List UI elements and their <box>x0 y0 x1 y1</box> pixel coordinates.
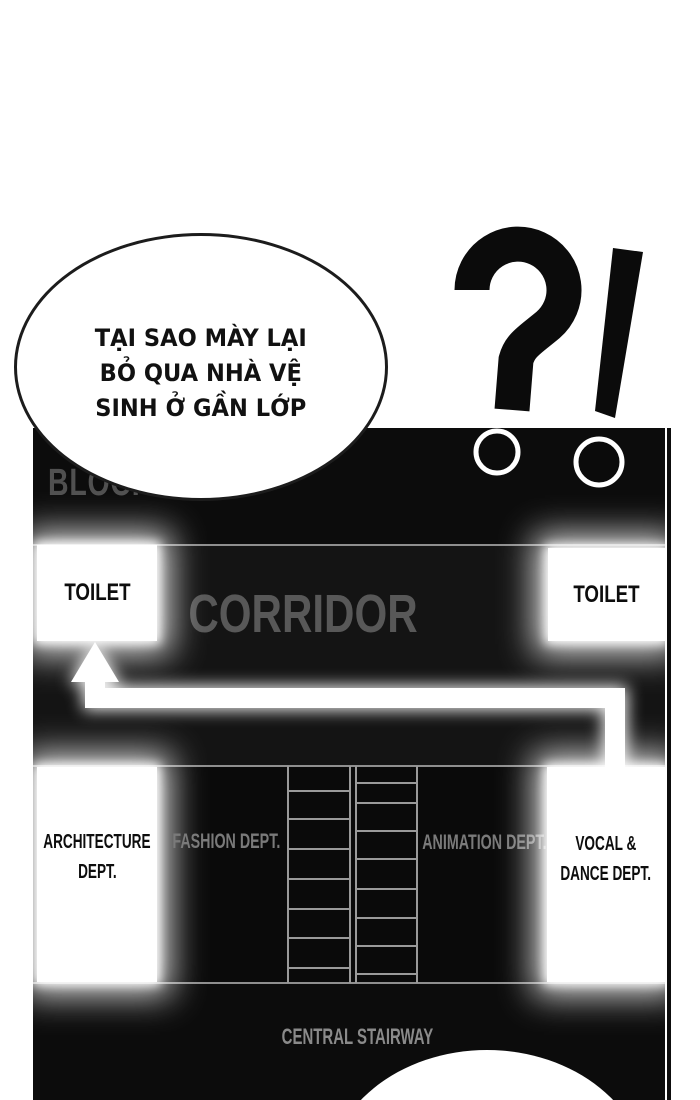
interjection-mark-icon <box>440 215 680 505</box>
route-arrow <box>33 428 665 1100</box>
speech-bubble: TẠI SAO MÀY LẠI BỎ QUA NHÀ VỆ SINH Ở GẦN… <box>14 233 388 501</box>
speech-bubble-text: TẠI SAO MÀY LẠI BỎ QUA NHÀ VỆ SINH Ở GẦN… <box>95 309 307 426</box>
question-mark-hook <box>472 244 564 410</box>
exclamation-dot <box>576 439 622 485</box>
comic-page: BLOCK CORRIDOR TOILET TOILET ARCHITECTUR… <box>0 0 700 1100</box>
panel-outer-border <box>667 428 671 1100</box>
route-arrowhead-icon <box>71 642 119 682</box>
question-mark-dot <box>476 431 518 473</box>
exclamation-bar <box>595 248 643 418</box>
floor-map-panel: BLOCK CORRIDOR TOILET TOILET ARCHITECTUR… <box>33 428 665 1100</box>
route-path <box>95 680 615 776</box>
